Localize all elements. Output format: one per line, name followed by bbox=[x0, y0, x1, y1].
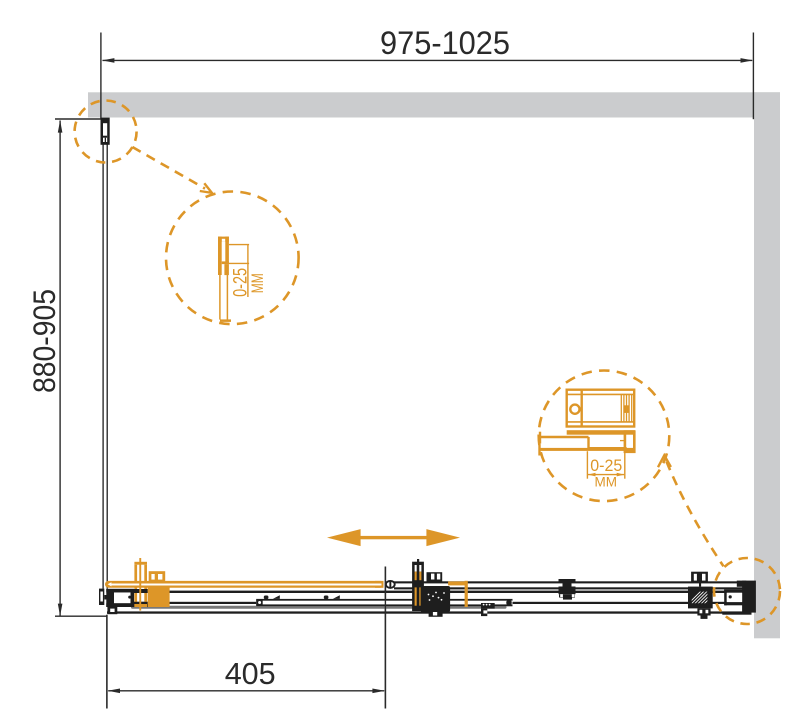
svg-text:405: 405 bbox=[225, 656, 276, 691]
svg-text:ММ: ММ bbox=[595, 475, 618, 490]
svg-text:0-25: 0-25 bbox=[590, 457, 622, 475]
svg-text:975-1025: 975-1025 bbox=[380, 25, 510, 61]
svg-text:ММ: ММ bbox=[249, 273, 267, 293]
svg-text:880-905: 880-905 bbox=[26, 289, 62, 393]
